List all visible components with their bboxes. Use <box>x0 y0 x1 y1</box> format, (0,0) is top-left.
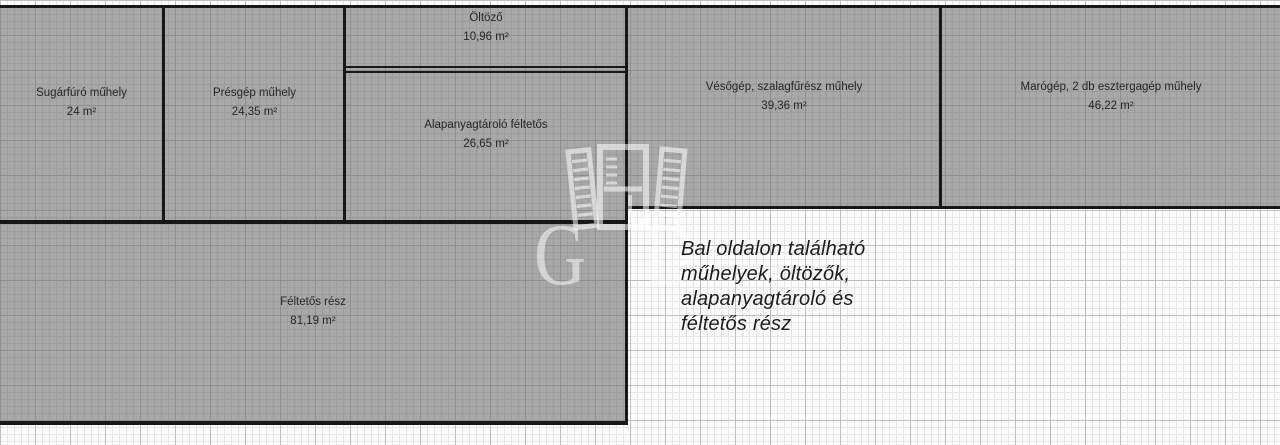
note-line: alapanyagtároló és <box>681 287 865 312</box>
room-name-label: Öltöző <box>463 11 508 25</box>
room-name-label: Féltetős rész <box>280 295 346 309</box>
wall-top <box>0 5 1280 8</box>
note-line: Bal oldalon található <box>681 237 865 262</box>
room-feltetos-resz: Féltetős rész 81,19 m² <box>0 221 626 423</box>
room-area-label: 46,22 m² <box>1021 99 1202 113</box>
room-label: Alapanyagtároló féltetős 26,65 m² <box>424 118 547 151</box>
floor-plan: Sugárfúró műhely 24 m² Présgép műhely 24… <box>0 0 1280 445</box>
wall-feltetos-bottom <box>0 421 628 425</box>
wall-middle-column-right <box>625 5 628 425</box>
room-name-label: Vésőgép, szalagfűrész műhely <box>706 80 863 94</box>
room-area-label: 26,65 m² <box>424 137 547 151</box>
wall-sugarfuro-presgep <box>162 5 165 224</box>
room-area-label: 24,35 m² <box>213 105 296 119</box>
room-name-label: Présgép műhely <box>213 86 296 100</box>
room-name-label: Sugárfúró műhely <box>36 86 127 100</box>
note-line: műhelyek, öltözők, <box>681 262 865 287</box>
wall-right-rooms-bottom <box>626 206 1280 209</box>
room-name-label: Marógép, 2 db esztergagép műhely <box>1021 80 1202 94</box>
room-vesogep-szalagfuresz-muhely: Vésőgép, szalagfűrész műhely 39,36 m² <box>628 7 940 207</box>
room-label: Présgép műhely 24,35 m² <box>213 86 296 119</box>
room-area-label: 10,96 m² <box>463 30 508 44</box>
room-alapanyagtarolo-feltetos: Alapanyagtároló féltetős 26,65 m² <box>346 68 626 222</box>
room-area-label: 81,19 m² <box>280 314 346 328</box>
wall-oltozo-bottom-outer <box>343 66 628 68</box>
wall-oltozo-bottom-inner <box>343 71 628 73</box>
room-sugarfuro-muhely: Sugárfúró műhely 24 m² <box>0 6 163 222</box>
room-name-label: Alapanyagtároló féltetős <box>424 118 547 132</box>
room-oltozo: Öltöző 10,96 m² <box>346 7 626 69</box>
wall-vesogep-marogep <box>939 5 942 209</box>
wall-presgep-oltozo <box>343 5 346 224</box>
room-label: Marógép, 2 db esztergagép műhely 46,22 m… <box>1021 80 1202 113</box>
handwritten-note: Bal oldalon található műhelyek, öltözők,… <box>681 237 865 337</box>
room-label: Öltöző 10,96 m² <box>463 11 508 44</box>
room-label: Vésőgép, szalagfűrész műhely 39,36 m² <box>706 80 863 113</box>
room-presgep-muhely: Présgép műhely 24,35 m² <box>165 6 344 222</box>
room-label: Sugárfúró műhely 24 m² <box>36 86 127 119</box>
room-label: Féltetős rész 81,19 m² <box>280 295 346 328</box>
room-marogep-esztergagep-muhely: Marógép, 2 db esztergagép műhely 46,22 m… <box>942 7 1280 207</box>
wall-left-rooms-bottom <box>0 220 628 224</box>
note-line: féltetős rész <box>681 312 865 337</box>
room-area-label: 39,36 m² <box>706 99 863 113</box>
room-area-label: 24 m² <box>36 105 127 119</box>
